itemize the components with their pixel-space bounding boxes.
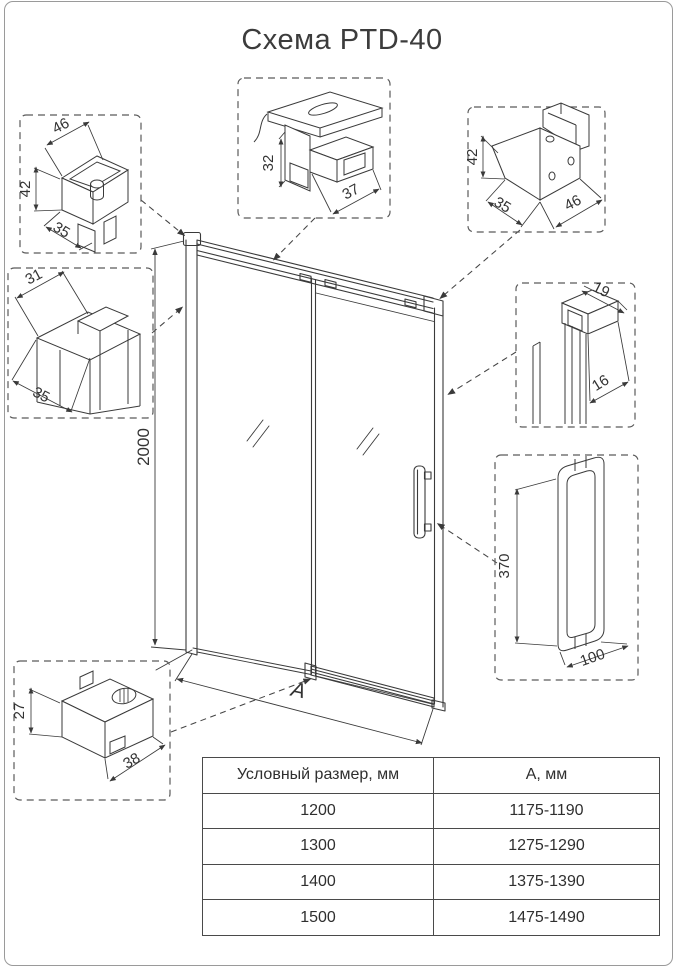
cell-a: 1175-1190 bbox=[434, 793, 660, 829]
detail-side-profile bbox=[533, 286, 629, 424]
size-table: Условный размер, мм А, мм 1200 1175-1190… bbox=[202, 757, 660, 936]
cell-a: 1475-1490 bbox=[434, 900, 660, 936]
table-row: 1500 1475-1490 bbox=[203, 900, 660, 936]
cell-a: 1275-1290 bbox=[434, 829, 660, 865]
cell-size: 1300 bbox=[203, 829, 434, 865]
table-row: 1400 1375-1390 bbox=[203, 864, 660, 900]
dim-tl-depth: 35 bbox=[50, 219, 73, 242]
dim-handle-height: 370 bbox=[496, 553, 513, 578]
leader-floor-guide bbox=[171, 679, 311, 732]
schematic-page: Схема PTD-40 bbox=[0, 0, 684, 970]
detail-floor-guide bbox=[29, 671, 165, 781]
dim-tl-width: 46 bbox=[50, 115, 73, 138]
glass-reflection-marks bbox=[247, 420, 379, 455]
door-right-profile bbox=[432, 308, 445, 711]
table-header-a: А, мм bbox=[434, 758, 660, 794]
door-top-rail bbox=[197, 240, 443, 316]
dim-label-door-height: 2000 bbox=[134, 428, 153, 466]
dim-tr-width: 46 bbox=[562, 192, 585, 215]
door-glass-edges bbox=[156, 293, 434, 705]
dim-tl-height: 42 bbox=[17, 181, 34, 198]
table-row: 1200 1175-1190 bbox=[203, 793, 660, 829]
leader-handle bbox=[438, 524, 498, 564]
leader-wall-profile bbox=[152, 307, 183, 333]
dim-tr-height: 42 bbox=[464, 149, 481, 166]
table-header-row: Условный размер, мм А, мм bbox=[203, 758, 660, 794]
door-bottom-rail bbox=[311, 666, 434, 707]
detail-top-left-bracket bbox=[34, 122, 128, 252]
cell-size: 1500 bbox=[203, 900, 434, 936]
table-row: 1300 1275-1290 bbox=[203, 829, 660, 865]
door-middle-stile bbox=[305, 278, 316, 680]
dim-tr-depth: 35 bbox=[491, 194, 514, 217]
dim-handle-width: 100 bbox=[578, 646, 607, 670]
detail-handle bbox=[515, 456, 628, 667]
detail-wall-profile bbox=[12, 271, 140, 414]
table-header-size: Условный размер, мм bbox=[203, 758, 434, 794]
leader-top-right bbox=[440, 230, 520, 299]
cell-a: 1375-1390 bbox=[434, 864, 660, 900]
cell-size: 1400 bbox=[203, 864, 434, 900]
dim-wp-width: 31 bbox=[23, 266, 46, 289]
dim-rail-height: 32 bbox=[260, 155, 277, 172]
dim-fg-height: 27 bbox=[11, 703, 28, 720]
main-door-drawing bbox=[156, 233, 445, 712]
dim-sp-depth: 16 bbox=[589, 372, 612, 395]
leader-top-center bbox=[274, 218, 316, 260]
dim-fg-width: 38 bbox=[120, 750, 143, 773]
cell-size: 1200 bbox=[203, 793, 434, 829]
door-handle bbox=[414, 466, 431, 538]
dim-label-door-width: А bbox=[287, 678, 307, 704]
door-left-profile bbox=[184, 233, 201, 656]
leader-side-profile bbox=[448, 352, 516, 395]
dim-wp-depth: 35 bbox=[30, 384, 53, 407]
detail-top-rail bbox=[254, 92, 382, 214]
leader-top-left bbox=[141, 200, 185, 236]
main-dimensions bbox=[151, 241, 433, 745]
